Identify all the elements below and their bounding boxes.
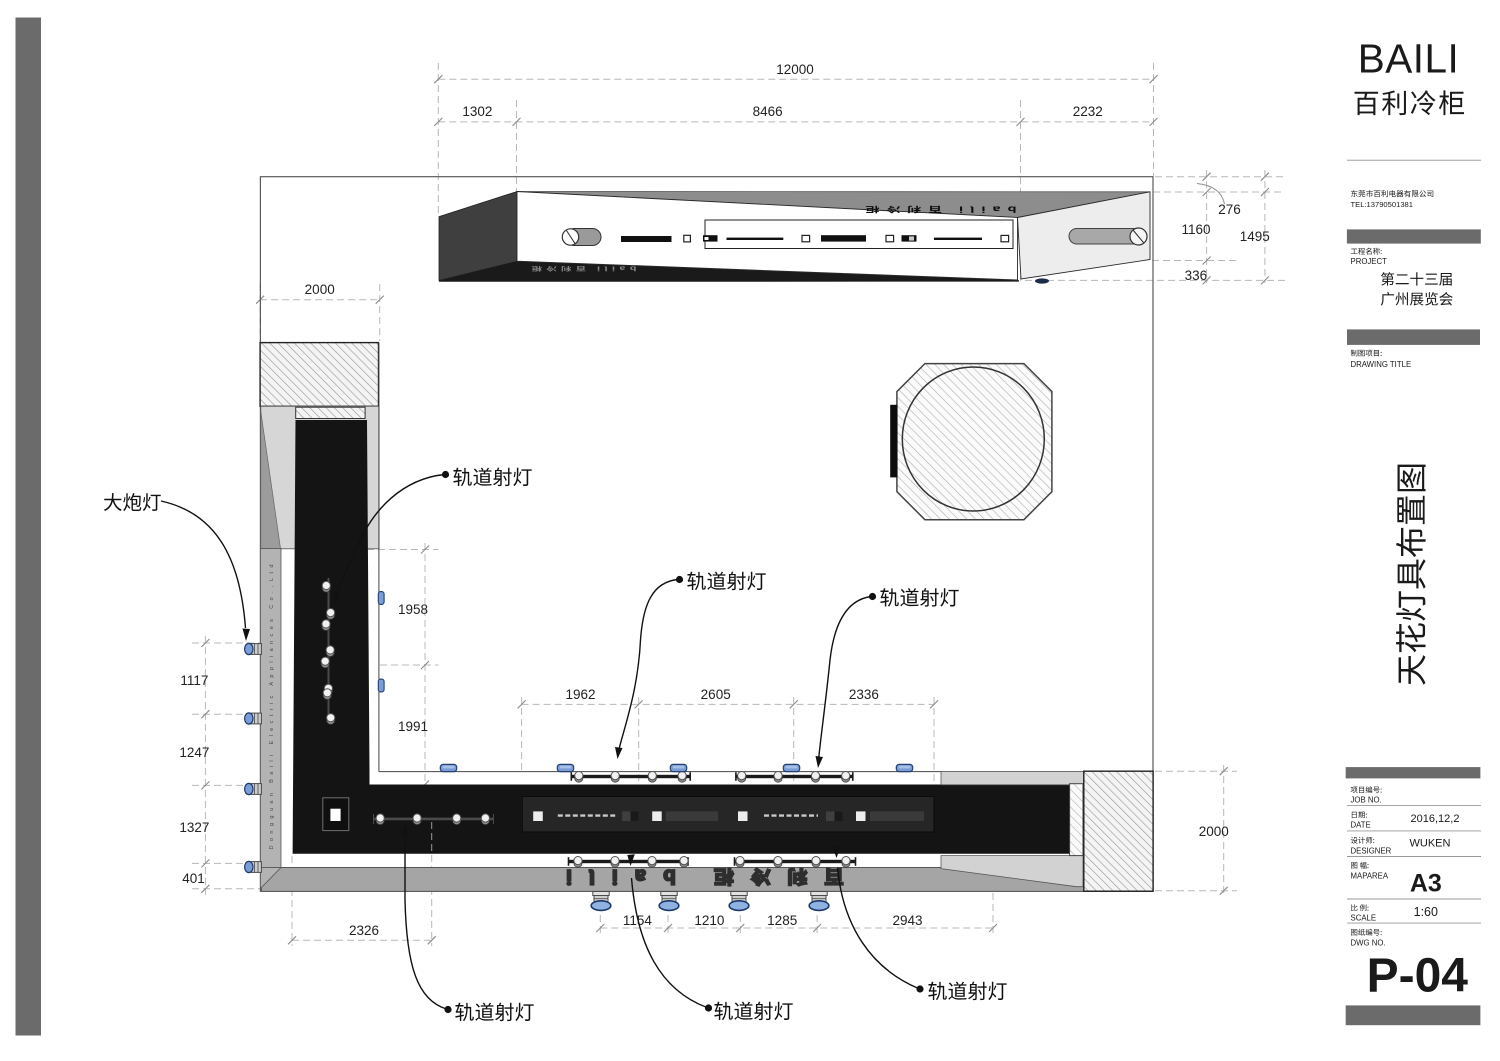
svg-text:2016,12,2: 2016,12,2 xyxy=(1411,813,1460,825)
svg-text:336: 336 xyxy=(1185,268,1208,283)
svg-text:A3: A3 xyxy=(1410,870,1442,898)
svg-text:DRAWING TITLE: DRAWING TITLE xyxy=(1351,360,1412,369)
svg-text:TEL:13790501381: TEL:13790501381 xyxy=(1351,200,1414,209)
svg-text:2000: 2000 xyxy=(1199,824,1229,839)
svg-text:2326: 2326 xyxy=(349,923,379,938)
svg-text:2336: 2336 xyxy=(849,687,879,702)
svg-text:2000: 2000 xyxy=(305,282,335,297)
svg-text:WUKEN: WUKEN xyxy=(1410,838,1451,850)
svg-text:2605: 2605 xyxy=(701,687,731,702)
svg-text:DESIGNER: DESIGNER xyxy=(1351,846,1392,855)
svg-text:P-04: P-04 xyxy=(1367,950,1469,1003)
svg-text:MAPAREA: MAPAREA xyxy=(1351,871,1389,880)
svg-text:DWG NO.: DWG NO. xyxy=(1351,938,1386,947)
svg-text:1160: 1160 xyxy=(1181,222,1210,237)
svg-text:8466: 8466 xyxy=(753,104,783,119)
svg-text:1117: 1117 xyxy=(180,673,208,688)
svg-text:1:60: 1:60 xyxy=(1414,905,1438,919)
svg-text:SCALE: SCALE xyxy=(1351,913,1377,922)
svg-text:1247: 1247 xyxy=(179,745,209,760)
svg-text:276: 276 xyxy=(1218,202,1241,217)
svg-text:1495: 1495 xyxy=(1240,229,1270,244)
svg-text:2232: 2232 xyxy=(1073,104,1103,119)
svg-text:1285: 1285 xyxy=(767,913,797,928)
svg-text:1302: 1302 xyxy=(462,104,492,119)
svg-text:1962: 1962 xyxy=(565,687,595,702)
svg-text:1210: 1210 xyxy=(694,913,724,928)
svg-text:12000: 12000 xyxy=(776,62,814,77)
svg-text:PROJECT: PROJECT xyxy=(1351,257,1388,266)
svg-text:401: 401 xyxy=(182,871,205,886)
svg-text:DATE: DATE xyxy=(1351,820,1371,829)
svg-text:JOB NO.: JOB NO. xyxy=(1351,795,1382,804)
svg-text:1327: 1327 xyxy=(179,820,209,835)
svg-text:1991: 1991 xyxy=(398,719,428,734)
svg-text:1958: 1958 xyxy=(398,602,428,617)
svg-text:BAILI: BAILI xyxy=(1358,36,1460,82)
svg-text:2943: 2943 xyxy=(892,913,922,928)
